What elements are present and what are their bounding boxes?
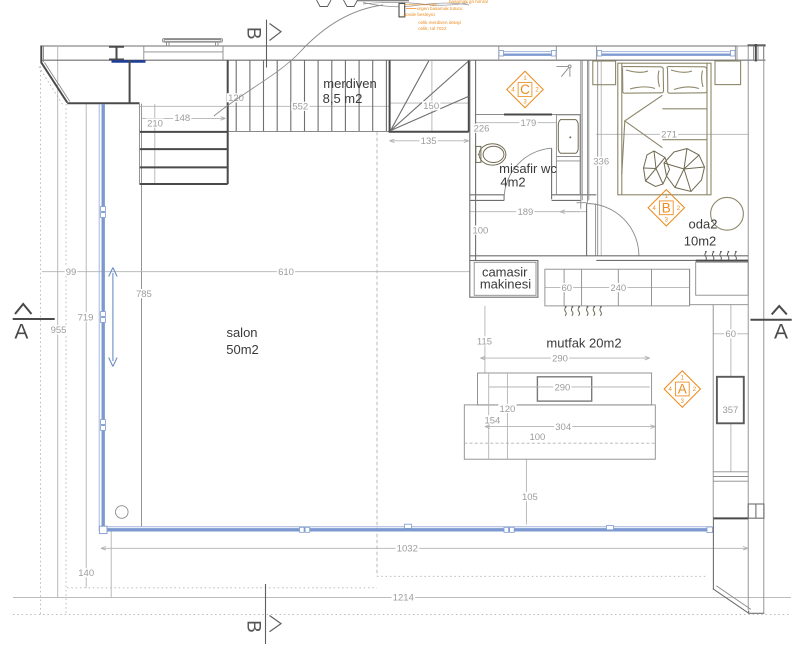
svg-text:B: B bbox=[662, 200, 671, 215]
svg-text:100: 100 bbox=[472, 226, 488, 237]
svg-text:357: 357 bbox=[722, 405, 738, 416]
svg-text:785: 785 bbox=[136, 289, 152, 300]
svg-text:govde besleyici: govde besleyici bbox=[404, 12, 435, 17]
svg-text:148: 148 bbox=[174, 113, 190, 124]
svg-text:celik; ral 7022: celik; ral 7022 bbox=[418, 26, 447, 31]
svg-text:610: 610 bbox=[278, 267, 294, 278]
svg-text:C: C bbox=[520, 82, 530, 97]
svg-text:makinesi: makinesi bbox=[480, 277, 531, 292]
svg-text:4m2: 4m2 bbox=[500, 175, 525, 190]
svg-text:A: A bbox=[14, 321, 28, 344]
svg-text:1032: 1032 bbox=[397, 544, 418, 555]
svg-text:60: 60 bbox=[725, 329, 736, 340]
svg-text:merdiven: merdiven bbox=[323, 76, 376, 91]
svg-text:1214: 1214 bbox=[393, 593, 414, 604]
svg-text:120: 120 bbox=[499, 404, 515, 415]
svg-text:290: 290 bbox=[554, 382, 570, 393]
svg-text:226: 226 bbox=[474, 124, 490, 135]
svg-text:154: 154 bbox=[484, 415, 500, 426]
svg-text:135: 135 bbox=[421, 136, 437, 147]
svg-text:271: 271 bbox=[661, 130, 677, 141]
svg-text:50m2: 50m2 bbox=[226, 342, 259, 357]
svg-text:290: 290 bbox=[552, 354, 568, 365]
svg-text:955: 955 bbox=[51, 325, 67, 336]
svg-text:60: 60 bbox=[562, 283, 573, 294]
svg-text:120: 120 bbox=[228, 93, 244, 104]
svg-text:salon: salon bbox=[226, 325, 257, 340]
svg-text:10m2: 10m2 bbox=[684, 234, 717, 249]
svg-text:mutfak 20m2: mutfak 20m2 bbox=[546, 336, 621, 351]
svg-text:140: 140 bbox=[78, 568, 94, 579]
svg-text:105: 105 bbox=[522, 492, 538, 503]
svg-text:719: 719 bbox=[78, 312, 94, 323]
svg-text:oda2: oda2 bbox=[689, 217, 718, 232]
svg-text:150: 150 bbox=[423, 101, 439, 112]
svg-text:B: B bbox=[243, 27, 264, 40]
svg-text:240: 240 bbox=[610, 283, 626, 294]
svg-text:210: 210 bbox=[147, 118, 163, 129]
svg-text:celik merdiven detayi: celik merdiven detayi bbox=[418, 20, 461, 25]
svg-text:115: 115 bbox=[477, 336, 492, 347]
svg-text:A: A bbox=[774, 321, 788, 344]
svg-text:189: 189 bbox=[517, 207, 533, 218]
svg-text:8,5 m2: 8,5 m2 bbox=[323, 91, 363, 106]
svg-text:552: 552 bbox=[292, 102, 308, 113]
svg-text:A: A bbox=[678, 382, 687, 397]
svg-text:179: 179 bbox=[520, 118, 536, 129]
svg-text:B: B bbox=[243, 620, 264, 633]
svg-text:304: 304 bbox=[555, 422, 571, 433]
svg-text:100: 100 bbox=[529, 432, 545, 443]
svg-text:urgen basamak tutucu: urgen basamak tutucu bbox=[417, 6, 463, 11]
svg-text:basamak gri himral: basamak gri himral bbox=[449, 0, 488, 4]
svg-text:336: 336 bbox=[593, 157, 609, 168]
svg-text:99: 99 bbox=[66, 267, 77, 278]
